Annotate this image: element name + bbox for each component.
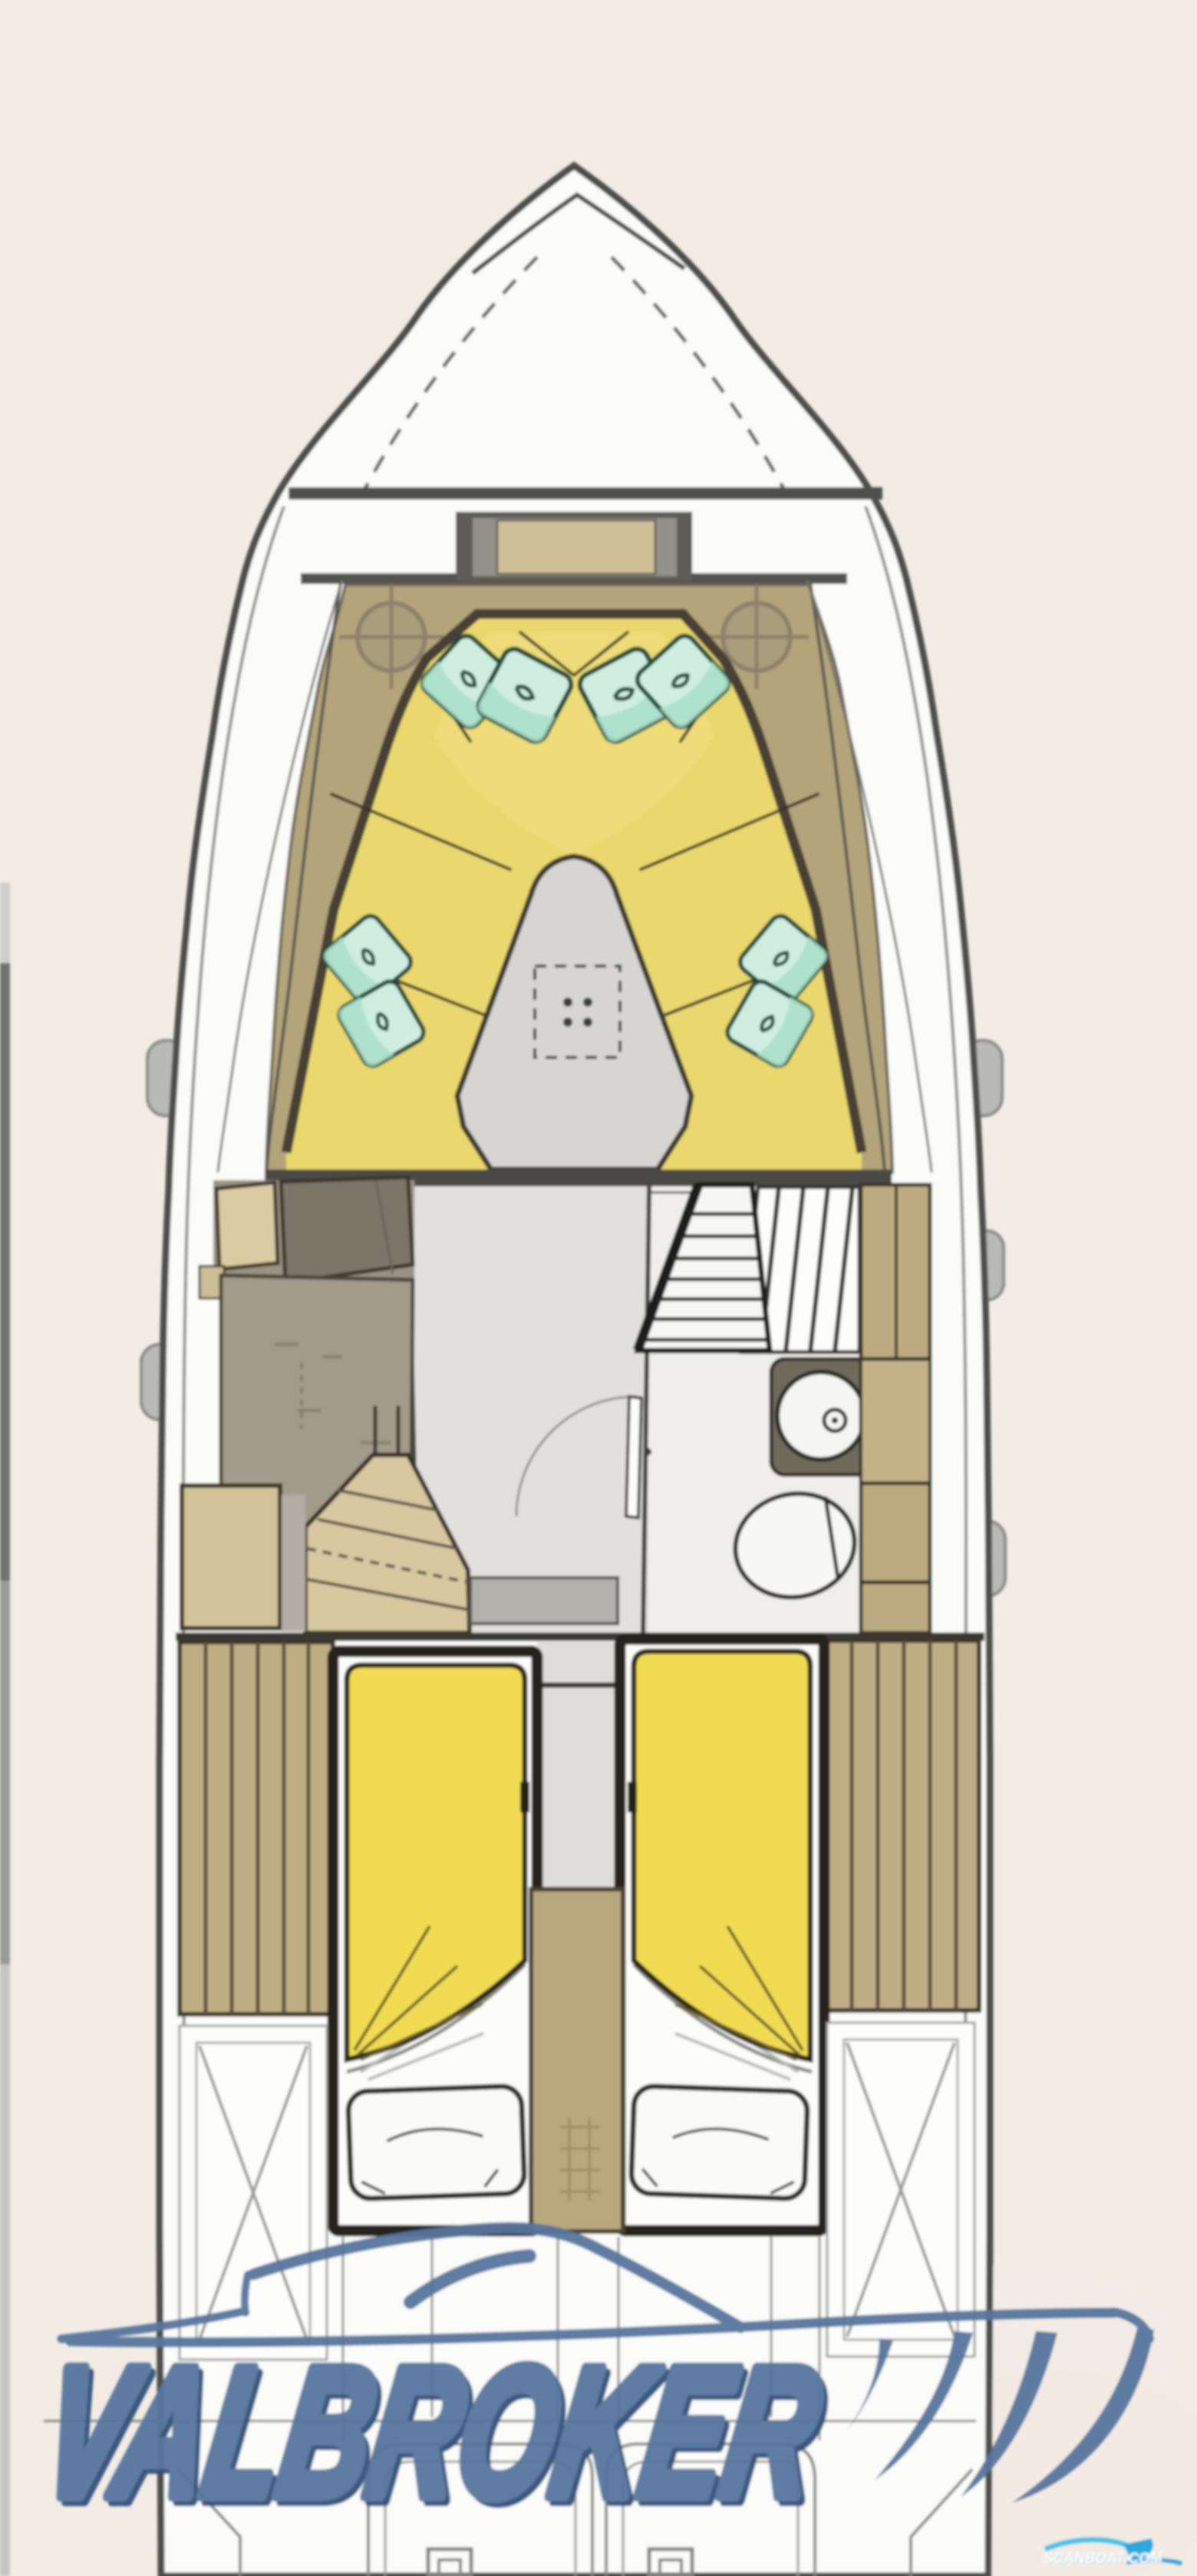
svg-text:VALBROKER: VALBROKER: [31, 2329, 832, 2535]
svg-text:SCANBOAT.COM: SCANBOAT.COM: [1044, 2551, 1163, 2567]
